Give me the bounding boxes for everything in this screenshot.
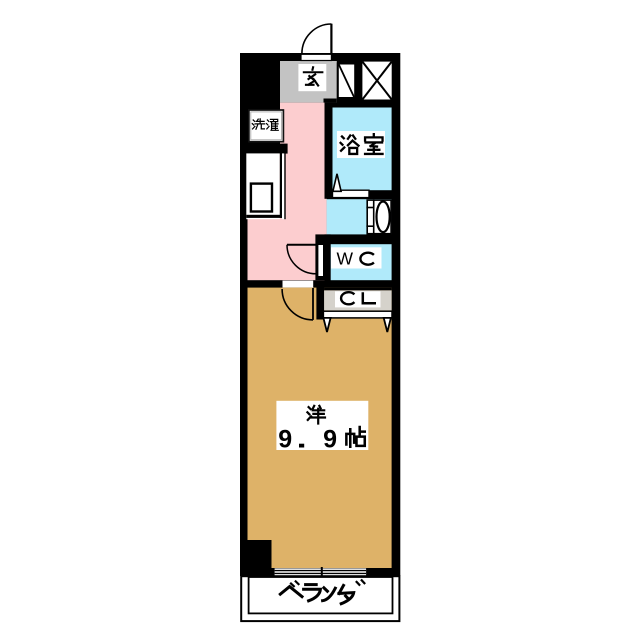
svg-text:9: 9 bbox=[278, 425, 292, 453]
svg-text:W: W bbox=[337, 249, 354, 269]
svg-text:9: 9 bbox=[323, 425, 337, 453]
